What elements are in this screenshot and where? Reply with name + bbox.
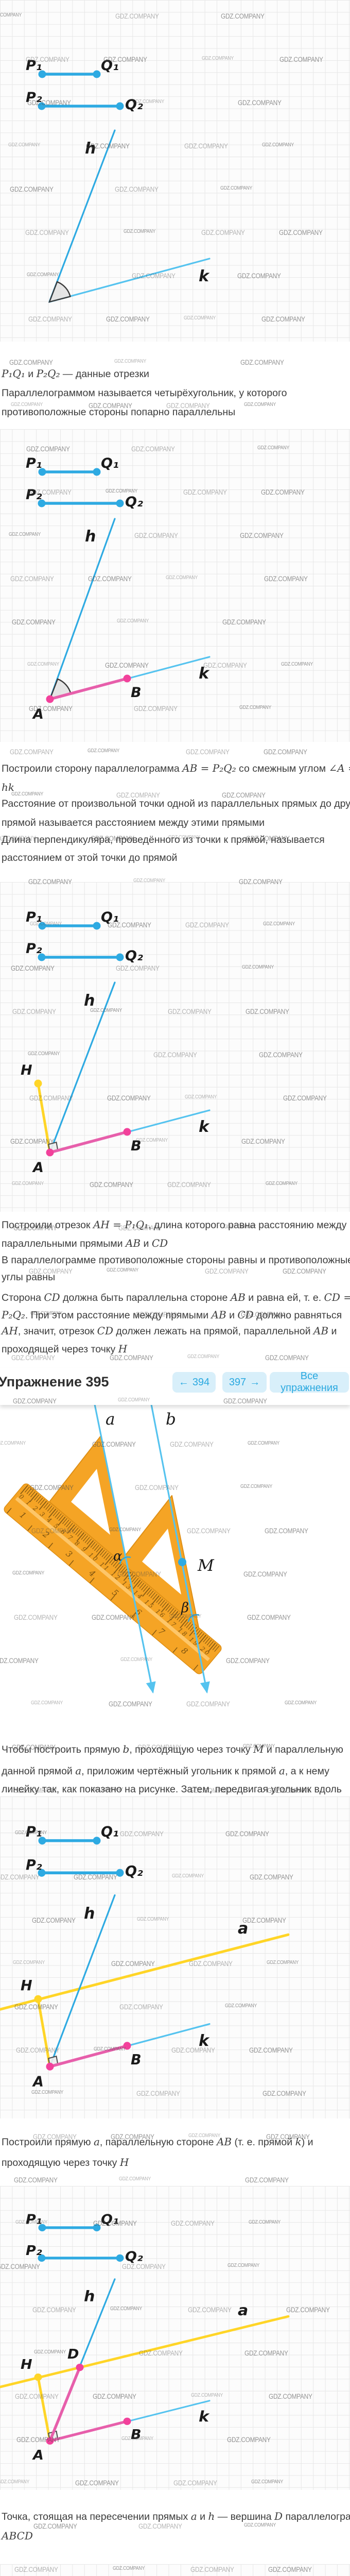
label-a-vertex: A (32, 706, 44, 722)
label-q2: Q₂ (125, 948, 143, 964)
label-p1: P₁ (26, 455, 42, 471)
label-d-vertex: D (67, 2347, 79, 2362)
watermark: GDZ.COMPANY (264, 748, 307, 756)
segment-ab (50, 2421, 127, 2441)
label-line-a: a (106, 1410, 115, 1429)
next-exercise-label: 397 (229, 1377, 246, 1388)
vertex-a (46, 2437, 54, 2445)
line-a (0, 2316, 288, 2388)
figure-ruler-set-square: 0 1 2 3 4 5 6 7 8 9 10 11 12 13 14 15 16… (0, 1405, 350, 1740)
point-m (178, 1558, 186, 1566)
point-h (34, 2374, 42, 2381)
paragraph: Точка, стоящая на пересечении прямых a и… (2, 2510, 349, 2523)
label-line-a: a (238, 1920, 248, 1938)
label-b-vertex: B (131, 1138, 142, 1154)
prev-exercise-label: 394 (192, 1377, 209, 1388)
label-b-vertex: B (131, 685, 142, 701)
paragraph: расстоянием от этой точки до прямой (2, 852, 349, 864)
all-exercises-label: Все упражнения (273, 1370, 346, 1394)
paragraph: проходящую через точку H (2, 2156, 349, 2169)
paragraph: Сторона CD должна быть параллельна сторо… (2, 1291, 349, 1304)
ray-h (49, 130, 115, 302)
label-k: k (199, 2032, 210, 2050)
vertex-b (124, 2418, 131, 2425)
vertex-a (46, 2063, 54, 2071)
paragraph: проходящей через точку H (2, 1343, 349, 1355)
label-p1: P₁ (26, 1824, 42, 1840)
paragraph: Длина перпендикуляра, проведённого из то… (2, 834, 349, 846)
paragraph: ABCD (2, 2530, 349, 2543)
label-b-vertex: B (131, 2428, 142, 2443)
figure-perpendicular-ah: P₁ Q₁ P₂ Q₂ h k H A B (0, 882, 350, 1212)
figure-line-a-through-h: P₁ Q₁ P₂ Q₂ h a k H A B (0, 1797, 350, 2119)
ray-k (49, 259, 209, 302)
point-q2 (116, 2255, 124, 2262)
point-q2 (116, 103, 124, 110)
label-q2: Q₂ (125, 494, 143, 510)
vertex-b (124, 2042, 131, 2049)
point-q1 (93, 468, 101, 476)
paragraph: противоположные стороны попарно параллел… (2, 406, 349, 418)
line-a (0, 1935, 288, 2010)
paragraph: Чтобы построить прямую b, проходящую чер… (2, 1743, 349, 1756)
label-p2: P₂ (26, 2244, 42, 2259)
watermark: GDZ.COMPANY (114, 359, 146, 364)
vertex-d (76, 2364, 84, 2371)
label-q1: Q₁ (101, 58, 119, 74)
paragraph: углы равны (2, 1272, 349, 1283)
point-q1 (93, 922, 101, 930)
watermark: GDZ.COMPANY (240, 359, 284, 366)
paragraph: hk (2, 781, 349, 794)
paragraph: линейку так, как показано на рисунке. За… (2, 1784, 349, 1795)
label-p1: P₁ (26, 58, 42, 74)
paragraph: параллельными прямыми AB и CD (2, 1237, 349, 1250)
point-h (34, 1080, 42, 1088)
paragraph: Построили отрезок AH = P₁Q₁, длина котор… (2, 1218, 349, 1231)
watermark: GDZ.COMPANY (14, 2176, 58, 2184)
label-p1: P₁ (26, 2212, 42, 2227)
point-q2 (116, 1869, 124, 1877)
label-a-vertex: A (32, 1160, 44, 1176)
figure-vertex-d: P₁ Q₁ P₂ Q₂ h a k H D A B (0, 2186, 350, 2490)
segment-ab (50, 1132, 127, 1153)
arrow-right-icon: → (250, 1377, 260, 1388)
label-k: k (199, 1118, 210, 1136)
paragraph: P₁Q₁ и P₂Q₂ — данные отрезки (2, 367, 349, 380)
label-b-vertex: B (131, 2052, 142, 2068)
page-title: Упражнение 395 (0, 1374, 109, 1390)
vertex-b (124, 1128, 131, 1136)
label-p2: P₂ (26, 1857, 42, 1873)
point-h (34, 1995, 42, 2003)
figure-given-segments-and-angle: P₁ Q₁ P₂ Q₂ h k (0, 0, 350, 342)
label-p2: P₂ (26, 487, 42, 503)
label-q2: Q₂ (125, 97, 143, 113)
prev-exercise-button[interactable]: ← 394 (172, 1372, 216, 1393)
paragraph: В параллелограмме противоположные сторон… (2, 1255, 349, 1266)
ray-h (50, 982, 115, 1153)
segment-da (50, 2367, 80, 2441)
label-k: k (199, 267, 210, 285)
label-q1: Q₁ (101, 455, 119, 471)
label-p1: P₁ (26, 909, 42, 925)
watermark: GDZ.COMPANY (245, 2176, 289, 2184)
point-q1 (93, 1837, 101, 1844)
label-k: k (199, 665, 210, 683)
ray-h (50, 519, 115, 699)
segment-ah (38, 1083, 50, 1153)
label-h-point: H (21, 1978, 32, 1994)
label-q2: Q₂ (125, 1863, 143, 1879)
label-line-a: a (238, 2302, 248, 2319)
label-k: k (199, 2408, 210, 2425)
vertex-a (46, 1149, 54, 1157)
label-q1: Q₁ (101, 1824, 119, 1840)
label-h-point: H (21, 2358, 32, 2372)
point-q1 (93, 2224, 101, 2231)
segment-ah (38, 2377, 50, 2441)
paragraph: AH, значит, отрезок CD должен лежать на … (2, 1325, 349, 1337)
label-p2: P₂ (26, 941, 42, 957)
segment-ah (38, 1999, 50, 2066)
paragraph: данной прямой a, приложим чертёжный угол… (2, 1765, 349, 1777)
watermark: GDZ.COMPANY (138, 2522, 182, 2530)
label-a-vertex: A (32, 2074, 44, 2090)
exercise-header: Упражнение 395 ← 394 397 → Все упражнени… (0, 1368, 350, 1405)
figure-side-ab: P₁ Q₁ P₂ Q₂ h k A B (0, 429, 350, 742)
watermark: GDZ.COMPANY (87, 748, 119, 754)
watermark: GDZ.COMPANY (33, 2522, 77, 2530)
label-q1: Q₁ (101, 909, 119, 925)
point-q1 (93, 71, 101, 78)
vertex-a (46, 696, 54, 703)
next-exercise-button[interactable]: 397 → (222, 1372, 267, 1393)
label-h-point: H (21, 1062, 32, 1078)
label-line-b: b (166, 1410, 176, 1429)
label-h: h (84, 992, 95, 1010)
watermark: GDZ.COMPANY (186, 748, 230, 756)
paragraph: P₂Q₂. При этом расстояние между прямыми … (2, 1309, 349, 1321)
watermark: GDZ.COMPANY (10, 748, 54, 756)
label-alpha: α (113, 1549, 122, 1564)
watermark: GDZ.COMPANY (9, 359, 53, 366)
arrow-left-icon: ← (179, 1377, 189, 1388)
label-h: h (85, 528, 96, 546)
paragraph: Построили прямую a, параллельную стороне… (2, 2136, 349, 2148)
label-q2: Q₂ (125, 2249, 143, 2264)
label-p2: P₂ (26, 90, 42, 106)
point-q2 (116, 954, 124, 961)
paragraph: Построили сторону параллелограмма AB = P… (2, 762, 349, 775)
point-q2 (116, 500, 124, 507)
solution-page: P₁ Q₁ P₂ Q₂ h k P₁Q₁ и P₂Q₂ — данные отр… (0, 0, 350, 2576)
figure-side-cd: P₁ Q₁ P₂ Q₂ h a k H D C A B (0, 2564, 350, 2576)
label-a-vertex: A (32, 2448, 44, 2463)
label-h: h (84, 2287, 95, 2304)
label-q1: Q₁ (101, 2212, 119, 2227)
paragraph: Параллелограммом называется четырёхуголь… (2, 387, 349, 399)
watermark: GDZ.COMPANY (244, 2522, 276, 2528)
all-exercises-button[interactable]: Все упражнения (270, 1372, 349, 1393)
paragraph: Расстояние от произвольной точки одной и… (2, 798, 349, 810)
vertex-b (124, 675, 131, 683)
segment-ab (50, 2046, 127, 2066)
watermark: GDZ.COMPANY (119, 2176, 151, 2182)
label-h: h (84, 1905, 95, 1923)
paragraph: прямой называется расстоянием между этим… (2, 817, 349, 829)
label-h: h (85, 140, 96, 158)
label-m: M (197, 1556, 215, 1575)
label-beta: β (181, 1600, 189, 1616)
